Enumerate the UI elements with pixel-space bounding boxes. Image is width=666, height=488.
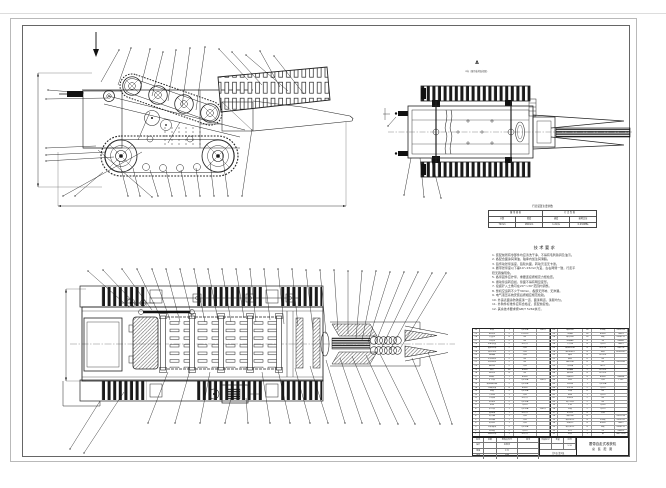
title-block-name: 履带自走式收获机 总 装 配 图 <box>576 438 628 455</box>
stage-value-cell: 1:10 <box>564 444 576 449</box>
notes-title: 技术要求 <box>492 245 598 251</box>
param-table-cell: 接地比压 <box>569 217 596 222</box>
technical-notes: 技术要求 1. 装配前所有零部件均应清洗干净，不得有毛刺铁屑及油污。2. 各配合… <box>492 245 598 311</box>
drawing-subtitle: 总 装 配 图 <box>592 447 613 451</box>
view-a-caption: A向（履带着地面视图） <box>444 69 510 73</box>
bom-cell: 31 <box>550 433 558 436</box>
signature-cell: 批准 <box>473 454 484 458</box>
bom-cell: 底盘总成 <box>480 433 506 436</box>
signature-row: 批准日期 <box>473 453 539 458</box>
bom-cell: 1 <box>473 433 480 436</box>
sheet-count-note: 共1张 第1张 <box>540 450 576 455</box>
param-table-cell: 行 走 性 能 <box>542 211 596 216</box>
stage-label-cell: 重量 <box>552 438 564 443</box>
notes-lines: 1. 装配前所有零部件均应清洗干净，不得有毛刺铁屑及油污。2. 各配合面涂润滑油… <box>492 253 598 312</box>
param-table-cell: 履 带 规 格 <box>489 211 542 216</box>
param-table: 履 带 规 格行 走 性 能节距宽度速度接地比压72mm180mm1.2m/s0… <box>488 210 597 228</box>
stage-value-cell <box>552 444 564 449</box>
param-table-caption: 行走装置主要参数 <box>488 204 597 208</box>
stage-value-cell <box>540 444 552 449</box>
param-table-cell: 180mm <box>515 223 542 228</box>
bom-cell <box>537 433 550 436</box>
param-table-cell: 72mm <box>489 223 515 228</box>
param-table-cell: 1.2m/s <box>542 223 569 228</box>
title-block-stage: 阶段标记重量比例 1:10 共1张 第1张 <box>539 438 576 455</box>
bom-cell: 1 <box>505 433 514 436</box>
notes-line: 12. 其余技术要求按GB/T 5262执行。 <box>492 307 598 312</box>
title-block-signatures: 标记处数更改文件号签字设计标准化审核工艺批准日期 <box>473 438 539 455</box>
window-top-line <box>0 13 666 14</box>
bom-cell: 1 <box>583 433 592 436</box>
stage-label-cell: 比例 <box>564 438 576 443</box>
param-table-row: 72mm180mm1.2m/s0.032MPa <box>489 222 596 228</box>
signature-cell <box>518 454 539 458</box>
bom-table: 30机架1Q235A焊接件60螺栓M8168.8级GB578329驱动轮2ZG3… <box>472 328 629 437</box>
bom-row: 1底盘总成1组合件31标牌1铝GB13306 <box>473 432 628 436</box>
param-table-row: 履 带 规 格行 走 性 能 <box>489 211 596 216</box>
drawing-sheet: A A向（履带着地面视图） 行走装置主要参数 履 带 规 格行 走 性 能节距宽… <box>0 0 666 488</box>
signature-cell <box>484 454 496 458</box>
param-table-row: 节距宽度速度接地比压 <box>489 216 596 222</box>
stage-label-cell: 阶段标记 <box>540 438 552 443</box>
view-a-label: A <box>462 61 492 66</box>
bom-cell: 组合件 <box>514 433 537 436</box>
bom-cell: 铝 <box>592 433 615 436</box>
param-table-cell: 节距 <box>489 217 515 222</box>
bom-cell: GB13306 <box>615 433 628 436</box>
param-table-cell: 0.032MPa <box>569 223 596 228</box>
bom-cell: 标牌 <box>558 433 584 436</box>
param-table-cell: 速度 <box>542 217 569 222</box>
title-block: 标记处数更改文件号签字设计标准化审核工艺批准日期 阶段标记重量比例 1:10 共… <box>472 437 629 456</box>
param-table-cell: 宽度 <box>515 217 542 222</box>
signature-cell: 日期 <box>497 454 519 458</box>
